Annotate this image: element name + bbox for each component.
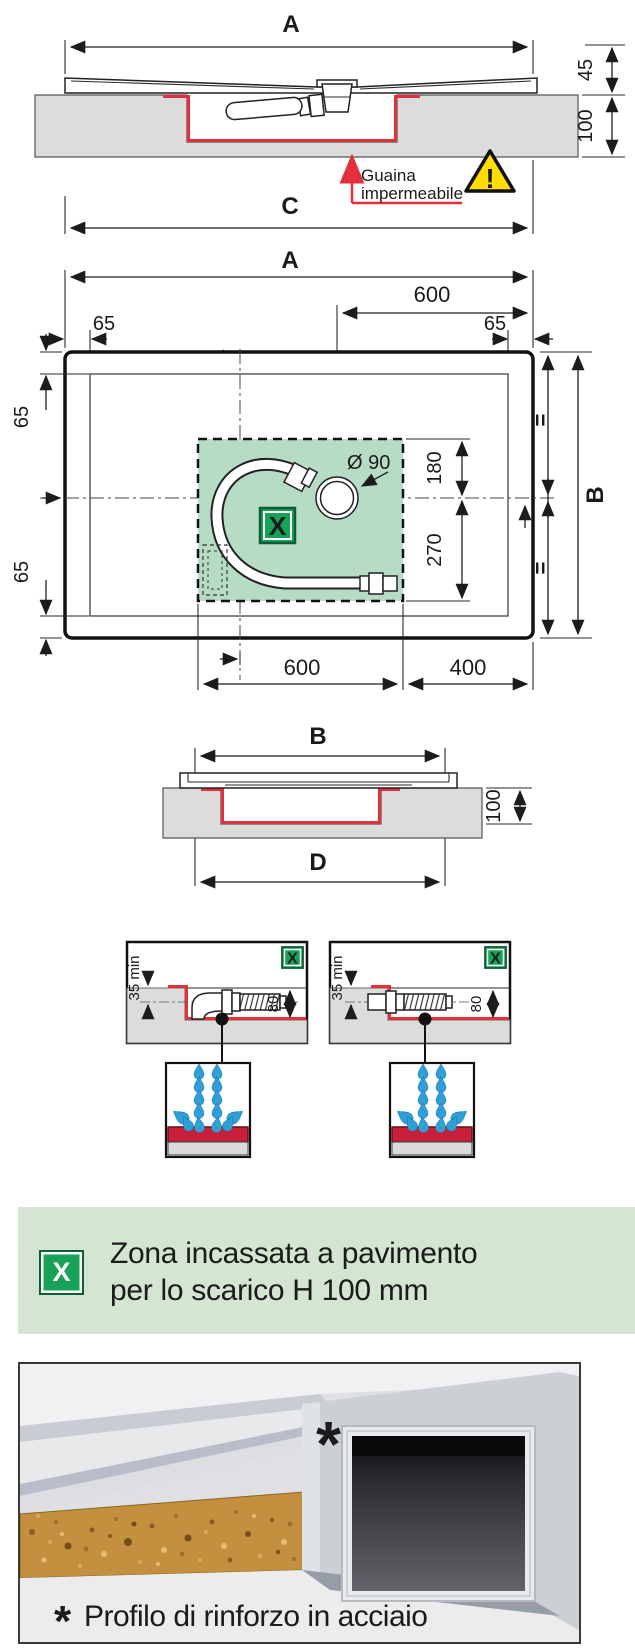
- detail-right-x-label: X: [490, 951, 501, 968]
- floor-slab-b: [163, 788, 482, 838]
- plan-dim-270-label: 270: [424, 533, 446, 566]
- legend-text: Zona incassata a pavimento per lo scaric…: [110, 1235, 477, 1309]
- reinforcement-photo: * * Profilo di rinforzo in acciaio: [18, 1362, 581, 1644]
- asterisk-marker: *: [316, 1408, 341, 1480]
- drain-diameter-label: Ø 90: [347, 452, 390, 474]
- drain-pipe-straight: [368, 991, 452, 1013]
- plan-dim-65-tl-label: 65: [93, 313, 115, 335]
- shower-tray-section: [65, 78, 537, 93]
- plan-dim-65-left-top-label: 65: [11, 406, 33, 428]
- dim-100-b-label: 100: [483, 789, 505, 822]
- caption-asterisk: *: [54, 1597, 72, 1642]
- drain-hole: [316, 477, 358, 519]
- equal-mark-top: =: [528, 414, 553, 427]
- shower-water-icon-left: [166, 1063, 250, 1157]
- membrane-outline-b: [201, 790, 400, 823]
- legend-x-badge: X: [39, 1250, 84, 1295]
- membrane-label-line1: Guaina: [361, 166, 416, 185]
- detail-left-x-label: X: [287, 951, 298, 968]
- legend-text-line2: per lo scarico H 100 mm: [110, 1272, 477, 1309]
- zone-x-badge: X: [260, 508, 295, 543]
- plan-view-drawing: A 600 65 65: [0, 250, 635, 695]
- detail-panel-right: 35 min 80 X: [329, 942, 510, 1157]
- legend-banner: X Zona incassata a pavimento per lo scar…: [18, 1207, 635, 1334]
- legend-text-line1: Zona incassata a pavimento: [110, 1235, 477, 1272]
- detail-left-dim-35-label: 35 min: [126, 955, 143, 1000]
- steel-profile: [302, 1372, 579, 1630]
- detail-left-x-badge: X: [282, 947, 303, 968]
- dim-d-label: D: [309, 849, 326, 876]
- caption-text: Profilo di rinforzo in acciaio: [84, 1600, 428, 1633]
- cross-section-ac-drawing: A Guaina impermeabile: [0, 0, 635, 245]
- shower-tray-section-b: [180, 773, 457, 788]
- plan-dim-600-top-label: 600: [414, 282, 451, 307]
- detail-right-dim-35-label: 35 min: [329, 955, 346, 1000]
- plan-dim-65-tr-label: 65: [484, 313, 506, 335]
- plan-dim-65-left-bottom-label: 65: [11, 561, 33, 583]
- zone-x-label: X: [269, 511, 287, 541]
- shower-water-icon-right: [390, 1063, 474, 1157]
- legend-x-label: X: [52, 1257, 70, 1288]
- chipboard-layer: [20, 1492, 304, 1578]
- equal-mark-bottom: =: [528, 562, 553, 575]
- dim-a-label: A: [282, 11, 299, 38]
- drain-detail-drawings: 35 min 80 X: [0, 890, 635, 1170]
- detail-left-dim-80-label: 80: [265, 996, 282, 1013]
- plan-dim-180-label: 180: [424, 451, 446, 484]
- installation-diagram-page: A Guaina impermeabile: [0, 0, 635, 1650]
- warning-exclamation: !: [485, 163, 494, 194]
- detail-right-x-badge: X: [485, 947, 506, 968]
- membrane-label-line2: impermeabile: [361, 184, 463, 203]
- dim-45-label: 45: [575, 59, 597, 81]
- plan-dim-b-label: B: [582, 486, 609, 503]
- plan-dim-400-bottom-label: 400: [450, 655, 487, 680]
- plan-dim-a-label: A: [281, 250, 298, 274]
- plan-dim-600-bottom-label: 600: [284, 655, 321, 680]
- cross-section-bd-drawing: B 100 D: [0, 700, 635, 910]
- dim-c-label: C: [281, 193, 298, 220]
- detail-panel-left: 35 min 80 X: [126, 942, 307, 1157]
- dim-b-label: B: [309, 723, 326, 750]
- detail-right-dim-80-label: 80: [468, 996, 485, 1013]
- dim-100-label: 100: [575, 109, 597, 142]
